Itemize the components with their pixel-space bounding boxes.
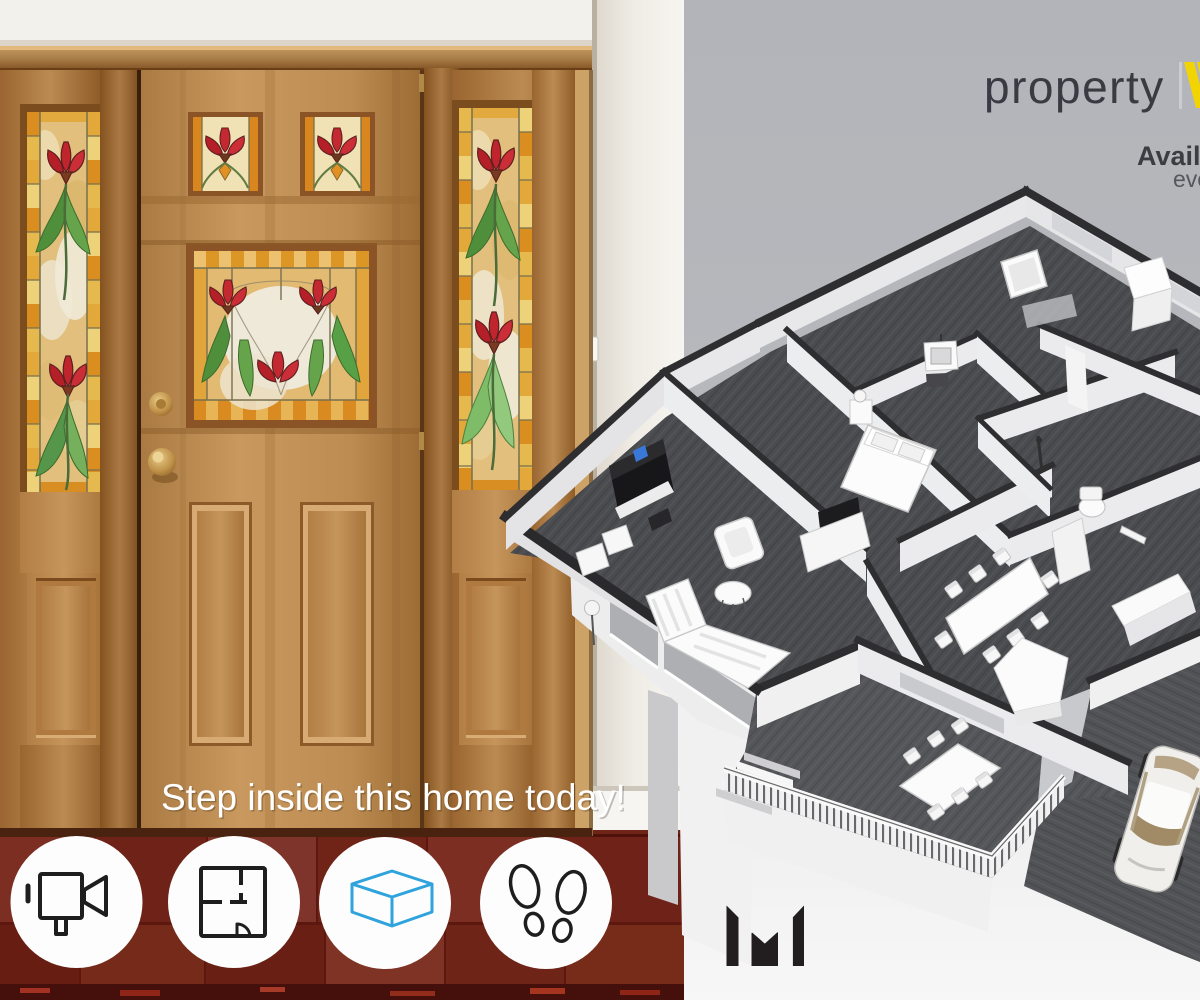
svg-text:property: property	[984, 61, 1165, 113]
svg-text:every: every	[1173, 166, 1200, 192]
